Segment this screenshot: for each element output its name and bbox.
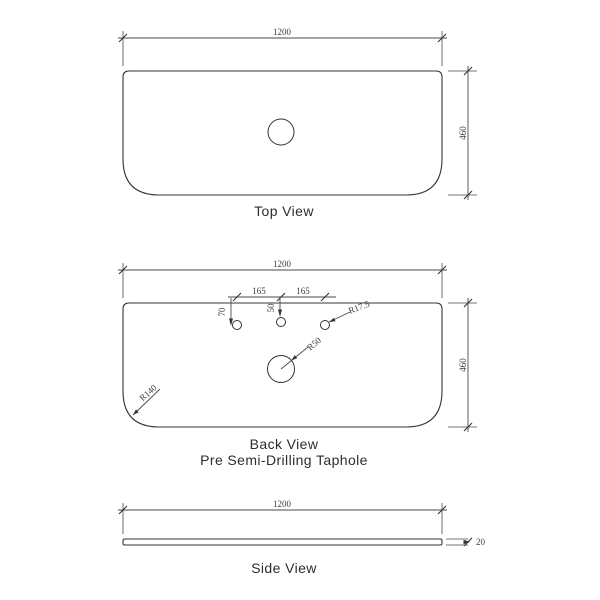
waste-radius-text: R50 — [305, 335, 323, 353]
top-depth-dimension-text: 460 — [458, 126, 468, 140]
taphole-offset-side-text: 70 — [217, 307, 227, 317]
top-view: 1200 460 Top View — [118, 27, 477, 219]
taphole-spacing-left-text: 165 — [252, 286, 266, 296]
back-view: 1200 165 165 70 50 R17.5 R50 R140 — [118, 259, 477, 468]
top-waste-hole — [268, 119, 294, 145]
side-view: 1200 20 Side View — [118, 499, 486, 576]
back-view-label: Back View — [250, 436, 319, 452]
thickness-dimension-text: 20 — [476, 537, 486, 547]
back-depth-dimension-text: 460 — [458, 358, 468, 372]
drawing-canvas: 1200 460 Top View 1200 165 165 70 50 — [0, 0, 600, 600]
taphole-right — [321, 321, 330, 330]
top-width-dimension-text: 1200 — [273, 27, 292, 37]
taphole-spacing-right-text: 165 — [296, 286, 310, 296]
back-view-outline — [123, 303, 442, 427]
back-width-dimension-text: 1200 — [273, 259, 292, 269]
taphole-left — [233, 321, 242, 330]
taphole-offset-center-arrow — [278, 310, 282, 318]
back-view-subtitle: Pre Semi-Drilling Taphole — [200, 452, 368, 468]
taphole-radius-arrow — [329, 318, 336, 322]
top-view-outline — [123, 71, 442, 195]
side-view-label: Side View — [251, 560, 317, 576]
technical-drawing-sheet: 1200 460 Top View 1200 165 165 70 50 — [0, 0, 600, 600]
top-view-label: Top View — [254, 203, 314, 219]
side-view-slab — [123, 539, 442, 545]
taphole-radius-text: R17.5 — [347, 298, 371, 315]
taphole-offset-center-text: 50 — [266, 303, 276, 313]
side-width-dimension-text: 1200 — [273, 499, 292, 509]
taphole-center — [277, 318, 286, 327]
